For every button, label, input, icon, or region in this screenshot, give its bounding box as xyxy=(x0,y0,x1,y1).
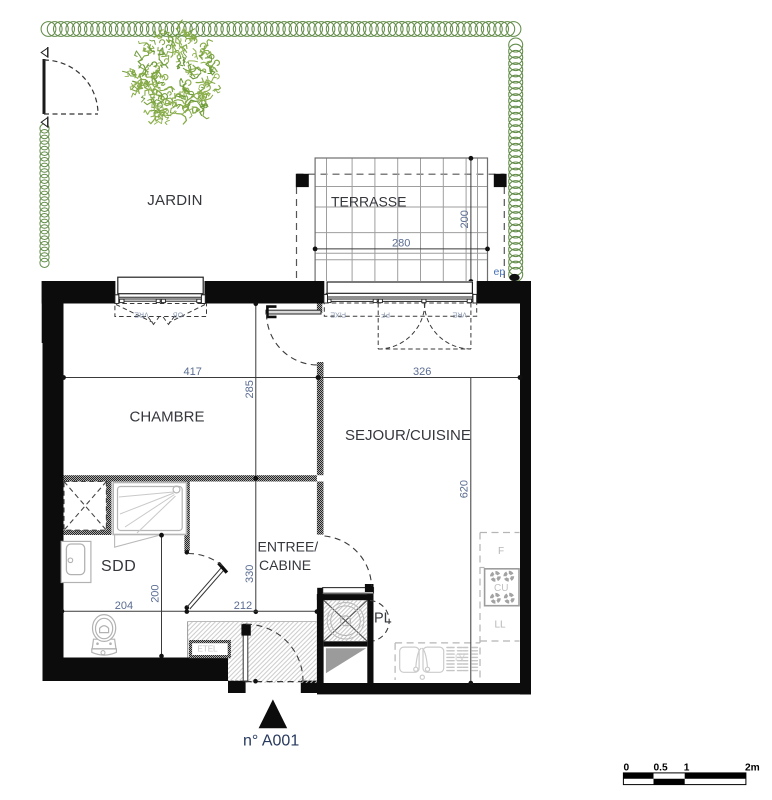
svg-text:ETEL: ETEL xyxy=(198,645,219,654)
svg-text:326: 326 xyxy=(413,366,431,378)
svg-text:VRE: VRE xyxy=(134,310,149,317)
svg-text:OB: OB xyxy=(173,310,183,317)
svg-text:FIXE: FIXE xyxy=(330,310,346,317)
svg-text:620: 620 xyxy=(459,480,471,498)
svg-text:LL: LL xyxy=(495,620,507,631)
svg-text:F: F xyxy=(498,546,504,557)
svg-text:280: 280 xyxy=(392,238,410,250)
svg-text:200: 200 xyxy=(459,210,471,228)
svg-text:LV: LV xyxy=(455,653,465,663)
svg-text:417: 417 xyxy=(184,366,202,378)
svg-text:PF: PF xyxy=(381,310,390,317)
svg-text:204: 204 xyxy=(115,600,133,612)
svg-text:ep: ep xyxy=(494,266,506,278)
svg-text:330: 330 xyxy=(244,565,256,583)
svg-text:212: 212 xyxy=(234,600,252,612)
svg-text:2m: 2m xyxy=(745,763,760,774)
svg-text:1: 1 xyxy=(684,763,690,774)
svg-text:CU: CU xyxy=(494,583,508,594)
svg-text:CABINE: CABINE xyxy=(259,557,311,573)
svg-text:CHAMBRE: CHAMBRE xyxy=(130,409,205,426)
svg-text:SDD: SDD xyxy=(101,558,136,575)
svg-text:n° A001: n° A001 xyxy=(243,733,299,750)
svg-text:ENTREE/: ENTREE/ xyxy=(258,539,319,555)
svg-text:SEJOUR/CUISINE: SEJOUR/CUISINE xyxy=(345,427,471,444)
svg-text:JARDIN: JARDIN xyxy=(147,192,202,209)
svg-text:285: 285 xyxy=(244,380,256,398)
svg-text:PL: PL xyxy=(374,611,392,627)
svg-text:0.5: 0.5 xyxy=(654,763,668,774)
svg-text:0: 0 xyxy=(624,763,630,774)
svg-text:200: 200 xyxy=(149,584,161,602)
svg-text:VRE: VRE xyxy=(452,310,467,317)
svg-text:TERRASSE: TERRASSE xyxy=(331,194,406,210)
